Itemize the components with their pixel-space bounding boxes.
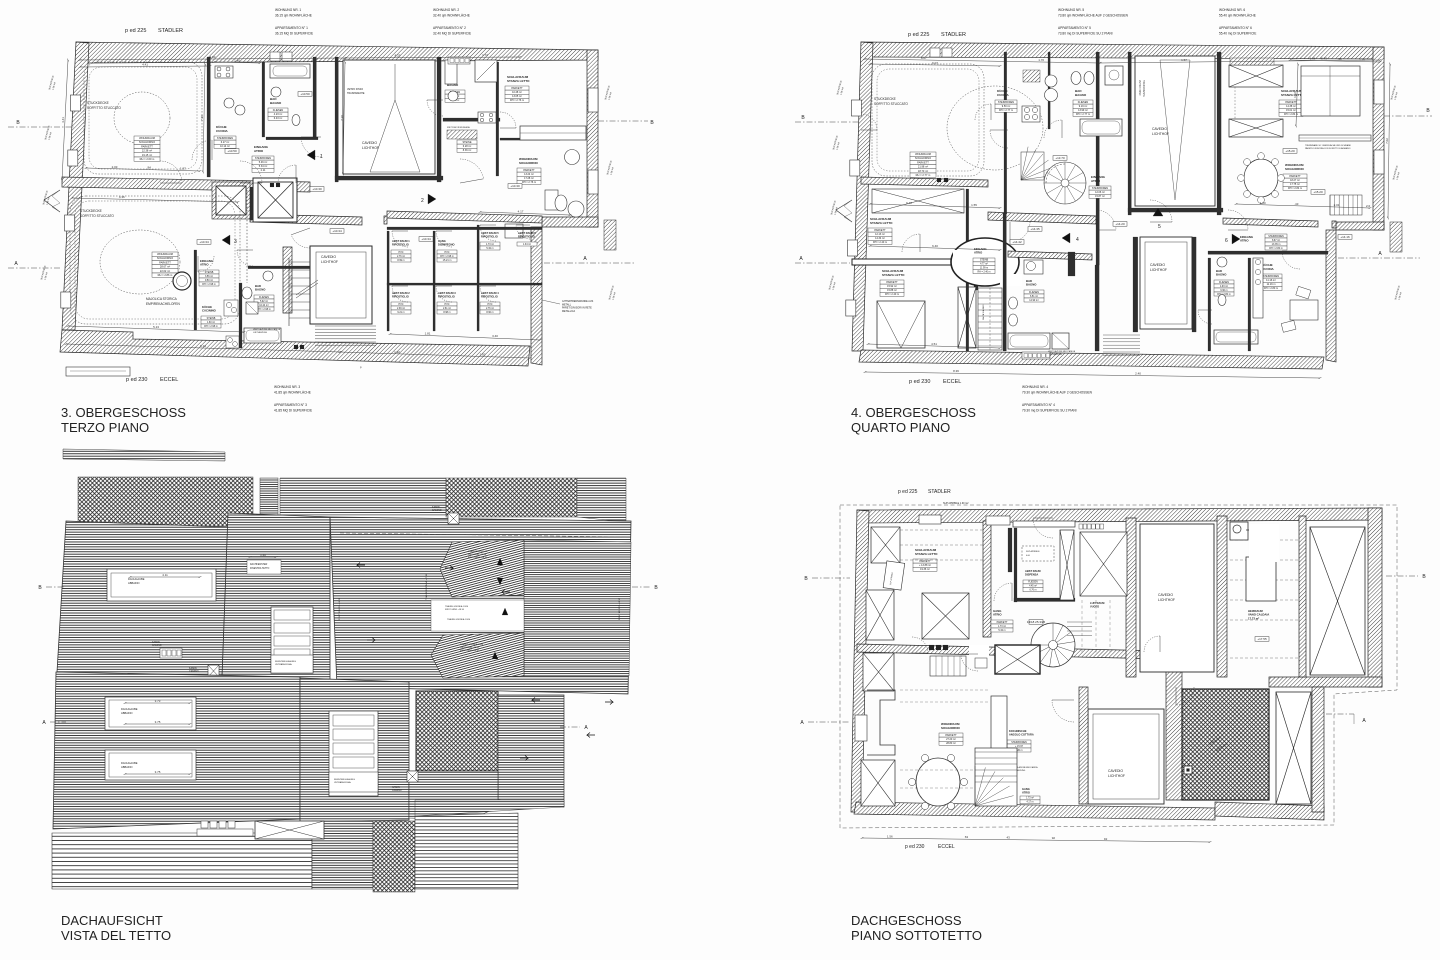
svg-text:CAMINO: CAMINO [152,644,162,647]
svg-text:ABST RAUM 6: ABST RAUM 6 [518,231,536,235]
svg-text:KOCHNISCHE: KOCHNISCHE [1009,729,1027,733]
svg-text:PARETE DIVISORIA CON SOFFITTO: PARETE DIVISORIA CON SOFFITTO E ARMADIO [1305,147,1351,150]
svg-text:RH = 2.84 m: RH = 2.84 m [1288,187,1302,190]
svg-text:BAGNO: BAGNO [255,288,266,292]
svg-text:ATRIO: ATRIO [993,613,1002,617]
svg-text:APPARTAMENTO N° 2: APPARTAMENTO N° 2 [433,26,466,30]
svg-text:8.98 m: 8.98 m [443,311,450,314]
svg-text:WOHNUNG NR. 6: WOHNUNG NR. 6 [1219,8,1245,12]
svg-text:TRAPEZBLECH 1 FB: TRAPEZBLECH 1 FB [468,550,488,553]
svg-text:4: 4 [1076,237,1079,243]
svg-text:STEINBODEN: STEINBODEN [1268,235,1284,238]
svg-text:SOGGIORNO: SOGGIORNO [941,726,961,730]
svg-text:BAGNO: BAGNO [1026,283,1037,287]
svg-text:19.36 m²: 19.36 m² [920,568,930,571]
svg-text:4.23 m²: 4.23 m² [274,113,283,116]
svg-text:9.21 m: 9.21 m [397,311,404,314]
svg-text:43: 43 [1007,836,1011,840]
svg-text:5.13: 5.13 [153,325,159,329]
svg-text:32.40 MQ DI SUPERFICIE: 32.40 MQ DI SUPERFICIE [433,32,471,36]
svg-text:5: 5 [1158,224,1161,230]
svg-text:VETRATA FISSA: VETRATA FISSA [334,781,351,784]
svg-text:WOHNUNG NR. 3: WOHNUNG NR. 3 [274,385,300,389]
svg-text:RH = 2.80 m: RH = 2.80 m [1264,287,1278,290]
svg-text:STUCKDECKE: STUCKDECKE [874,97,896,101]
svg-text:PARKETT: PARKETT [523,169,535,172]
svg-text:FIRST GRND +18.94: FIRST GRND +18.94 [445,609,465,611]
svg-text:RH = 2.76 m: RH = 2.76 m [510,99,524,102]
svg-text:2: 2 [421,198,424,204]
svg-text:ATRIO: ATRIO [200,263,209,267]
svg-text:CUCINA: CUCINA [1262,267,1274,271]
svg-text:STEINBODEN: STEINBODEN [1263,275,1279,278]
svg-text:ECCEL: ECCEL [160,377,178,383]
svg-text:CUCINA: CUCINA [216,129,228,133]
svg-text:TRAUFE GRONDA 1 B.M: TRAUFE GRONDA 1 B.M [445,605,468,608]
svg-text:1: 1 [320,154,323,160]
svg-text:+10.30: +10.30 [312,187,322,191]
svg-text:CAMINO: CAMINO [189,670,199,673]
svg-text:VETRATA FISSA: VETRATA FISSA [275,663,292,666]
svg-text:p ed 230: p ed 230 [909,379,930,385]
svg-text:+10.30: +10.30 [510,184,520,188]
svg-text:8.67 m²: 8.67 m² [1272,239,1280,242]
svg-text:WOHNUNG NR. 5: WOHNUNG NR. 5 [1058,8,1084,12]
svg-text:RIPOSTIGLIO: RIPOSTIGLIO [392,243,409,247]
svg-text:1.73 m²: 1.73 m² [998,625,1006,628]
svg-text:WOHNUNG NR. 4: WOHNUNG NR. 4 [1022,385,1048,389]
svg-text:2.76 m²: 2.76 m² [397,255,405,258]
svg-text:73.80 qm WOHNFLÄCHE AUF 2 GESC: 73.80 qm WOHNFLÄCHE AUF 2 GESCHOSSEN [1058,14,1129,18]
svg-text:p ed 230: p ed 230 [905,844,925,850]
svg-text:4.41: 4.41 [61,117,65,123]
svg-text:ABST RAUM 1: ABST RAUM 1 [392,239,410,243]
svg-text:RH = 2.86 m: RH = 2.86 m [158,273,173,277]
svg-text:STADLER: STADLER [928,489,951,495]
svg-text:FLIESEN: FLIESEN [1029,291,1039,294]
svg-text:PVC: PVC [445,303,450,306]
svg-text:13/18 25.3/26: 13/18 25.3/26 [1027,620,1046,624]
svg-text:ABST RAUM 3: ABST RAUM 3 [438,291,456,295]
svg-text:6.27 m²: 6.27 m² [221,141,230,144]
svg-text:3.75: 3.75 [155,720,161,724]
svg-text:RH = 2.60 m: RH = 2.60 m [140,157,155,161]
svg-text:5.34 m²: 5.34 m² [259,165,268,168]
svg-text:15.01 m²: 15.01 m² [1286,109,1296,112]
svg-text:PVC: PVC [488,303,493,306]
svg-text:5.46 m²: 5.46 m² [259,161,268,164]
svg-text:4.36: 4.36 [119,195,125,199]
svg-text:1.57: 1.57 [1181,58,1187,62]
svg-text:+10.50: +10.50 [300,92,310,96]
svg-text:FENSTERGLASUNG: FENSTERGLASUNG [334,778,355,781]
svg-text:LICHTHOF: LICHTHOF [321,260,338,264]
svg-text:ATRIO: ATRIO [254,149,264,153]
svg-text:p ed 225: p ed 225 [908,32,929,38]
svg-text:EINGANG: EINGANG [974,247,987,251]
svg-text:DISPENSA: DISPENSA [1025,573,1038,577]
svg-text:FLIESEN: FLIESEN [259,296,269,299]
svg-text:STEINBODEN: STEINBODEN [998,101,1014,104]
svg-text:28.67 m²: 28.67 m² [160,265,170,269]
svg-text:PARKETT: PARKETT [159,260,171,264]
svg-text:6.07: 6.07 [932,61,938,65]
svg-text:10.24 m²: 10.24 m² [259,304,269,307]
svg-text:STANZA LETTO: STANZA LETTO [870,221,893,225]
svg-text:13.35 m: 13.35 m [1272,243,1281,246]
svg-text:VISTA DEL TETTO: VISTA DEL TETTO [61,928,171,943]
svg-text:STEINE: STEINE [462,141,471,144]
svg-text:22.38 m²: 22.38 m² [142,149,152,153]
svg-text:FLIESEN: FLIESEN [273,109,284,112]
svg-text:MAJOLICA STORICA: MAJOLICA STORICA [146,297,178,301]
svg-text:1.81: 1.81 [425,332,431,336]
svg-text:11.99 m: 11.99 m [980,268,988,270]
svg-text:9.50 m²: 9.50 m² [205,279,213,282]
svg-text:79.30 qm WOHNFLÄCHE AUF 2 GESC: 79.30 qm WOHNFLÄCHE AUF 2 GESCHOSSEN [1022,391,1093,395]
svg-text:PVC: PVC [399,251,404,254]
svg-text:SOFFITTO STUCCATO: SOFFITTO STUCCATO [874,102,908,106]
svg-text:APPARTAMENTO N° 3: APPARTAMENTO N° 3 [274,403,307,407]
svg-text:17.28 m²: 17.28 m² [524,177,534,180]
svg-text:+10.34: +10.34 [332,229,342,233]
svg-text:PARKETT: PARKETT [1289,175,1301,178]
svg-text:PVC: PVC [445,251,450,254]
svg-text:5.34 m: 5.34 m [998,629,1005,632]
svg-text:LUFTHEIZUNG: LUFTHEIZUNG [253,332,267,334]
svg-text:PARKETT: PARKETT [886,281,898,284]
svg-text:DACHFENSTER: DACHFENSTER [250,563,268,566]
svg-text:CAMINO: CAMINO [392,789,402,792]
svg-text:APPARTAMENTO N° 4: APPARTAMENTO N° 4 [1022,403,1055,407]
svg-text:13.99 m²: 13.99 m² [1078,109,1088,112]
svg-text:TRENNWAND 90° OBERFLÄCHE UND S: TRENNWAND 90° OBERFLÄCHE UND SCHRANK [1305,144,1352,147]
svg-text:RIPOSTIGLIO: RIPOSTIGLIO [438,295,455,299]
svg-text:3.40: 3.40 [492,334,498,338]
svg-text:STADLER: STADLER [941,32,966,38]
svg-text:LICHTHOF: LICHTHOF [1158,598,1175,602]
svg-text:TRAUFE GRONDA +17.46: TRAUFE GRONDA +17.46 [425,573,428,600]
svg-text:CAVEDIO: CAVEDIO [1108,769,1123,773]
svg-text:VETRO FISSO: VETRO FISSO [347,88,363,91]
svg-text:RH = 2.98 m: RH = 2.98 m [204,325,218,328]
svg-text:FENSTERGLASUNG: FENSTERGLASUNG [275,660,296,663]
svg-text:1.36: 1.36 [1359,58,1365,62]
svg-text:73.80 mq DI SUPERFICIE SU 2 PI: 73.80 mq DI SUPERFICIE SU 2 PIANI [1058,32,1113,36]
svg-text:+10.34: +10.34 [199,240,209,244]
svg-text:p ed 230: p ed 230 [126,377,147,383]
svg-text:ABST RAUM 4: ABST RAUM 4 [481,291,499,295]
svg-text:+14.42: +14.42 [1012,240,1022,244]
svg-text:PARKETT: PARKETT [917,160,929,164]
svg-text:12.06 m²: 12.06 m² [1095,191,1105,194]
svg-text:STEINBODEN: STEINBODEN [1011,741,1027,744]
svg-text:1.72: 1.72 [482,53,488,57]
svg-text:QUARTO PIANO: QUARTO PIANO [851,420,950,435]
svg-text:3: 3 [234,239,237,245]
svg-text:2.01: 2.01 [1334,203,1340,207]
svg-text:WOHNRAUM: WOHNRAUM [915,152,931,156]
svg-text:3. OBERGESCHOSS: 3. OBERGESCHOSS [61,405,186,420]
svg-text:PARKETT: PARKETT [874,229,886,232]
svg-text:2.39 m²: 2.39 m² [397,307,405,310]
svg-text:SUP APRIBILE 1.90 m2: SUP APRIBILE 1.90 m2 [943,502,969,505]
svg-text:10.14 m²: 10.14 m² [220,145,230,148]
svg-text:SOGGIORNO: SOGGIORNO [139,140,155,144]
svg-text:TERZO PIANO: TERZO PIANO [61,420,149,435]
svg-text:6.07: 6.07 [921,56,927,60]
svg-text:STEINBODEN: STEINBODEN [217,137,233,140]
svg-text:RH = 2.98 m: RH = 2.98 m [202,283,216,286]
svg-text:32.40 qm WOHNFLÄCHE: 32.40 qm WOHNFLÄCHE [433,14,470,18]
svg-text:+14.16: +14.16 [1340,235,1350,239]
svg-text:DACHGESCHOSS: DACHGESCHOSS [851,913,962,928]
svg-text:ECCEL: ECCEL [943,379,961,385]
svg-text:SOGGIORNO: SOGGIORNO [1285,167,1305,171]
svg-text:FLIESEN: FLIESEN [1028,582,1038,584]
svg-text:ABBAINO: ABBAINO [121,765,133,769]
svg-text:RIPOSTIGLIO: RIPOSTIGLIO [481,295,498,299]
svg-text:11.16 m: 11.16 m [1267,283,1276,286]
svg-text:GANG: GANG [438,239,446,243]
svg-text:+17.55: +17.55 [1257,637,1267,641]
svg-text:5.13: 5.13 [200,344,206,348]
svg-text:APPARTAMENTO N° 5: APPARTAMENTO N° 5 [1058,26,1091,30]
svg-text:63: 63 [965,835,969,839]
svg-text:8.99 m: 8.99 m [397,259,404,262]
svg-text:3.75: 3.75 [155,770,161,774]
svg-text:SUP APRIBILE: SUP APRIBILE [1026,550,1040,553]
svg-text:CAVEDIO: CAVEDIO [362,141,377,145]
svg-text:3.73: 3.73 [155,699,161,703]
svg-text:TRAPEZ GRONDA 1 B.M: TRAPEZ GRONDA 1 B.M [460,643,483,646]
svg-text:LUFTRAUM: LUFTRAUM [1090,601,1104,605]
svg-text:4.11: 4.11 [162,573,168,577]
svg-text:FRETT/LATOR BRUSHERA: FRETT/LATOR BRUSHERA [447,126,470,129]
svg-text:8.36: 8.36 [953,369,959,373]
svg-text:+13.70: +13.70 [1055,156,1065,160]
svg-text:APPARTAMENTO N° 6: APPARTAMENTO N° 6 [1219,26,1252,30]
svg-text:CAVEDIO: CAVEDIO [1152,127,1167,131]
svg-text:PARKETT: PARKETT [1285,101,1297,104]
svg-text:15.21 m: 15.21 m [443,259,452,262]
svg-text:ABST RAUM: ABST RAUM [1025,569,1041,573]
svg-text:14.34 m²: 14.34 m² [875,237,885,240]
svg-text:6.43 m²: 6.43 m² [274,117,283,120]
svg-text:ABBAINO: ABBAINO [121,711,133,715]
svg-text:2.0: 2.0 [1366,204,1371,208]
svg-text:STANZA LETTO: STANZA LETTO [915,552,938,556]
svg-text:3.56 m²: 3.56 m² [205,275,213,278]
svg-text:5.92 m²: 5.92 m² [260,300,268,303]
svg-text:41.85 MQ DI SUPERFICIE: 41.85 MQ DI SUPERFICIE [274,409,312,413]
svg-text:RH = 2.77 m: RH = 2.77 m [916,173,931,177]
svg-text:18.27 m²: 18.27 m² [1290,179,1300,182]
svg-text:5.32 m: 5.32 m [486,247,493,250]
svg-text:ABBAINO: ABBAINO [128,581,140,585]
svg-text:+14.35: +14.35 [1030,227,1040,231]
svg-text:4.93: 4.93 [210,55,216,59]
svg-text:BAGNO: BAGNO [270,101,282,105]
svg-text:2.76 m²: 2.76 m² [486,307,494,310]
svg-text:4.51: 4.51 [931,342,937,346]
svg-text:LICHTHOF: LICHTHOF [362,146,379,150]
svg-text:ANGOLO COTTURA: ANGOLO COTTURA [1009,733,1034,737]
svg-text:15.87 m²: 15.87 m² [1095,195,1105,198]
svg-text:SALITA 18 ALZATE: SALITA 18 ALZATE [982,304,985,320]
svg-text:14.38 m²: 14.38 m² [1286,105,1296,108]
svg-text:WOHNRAUM: WOHNRAUM [139,136,155,140]
svg-text:79.30 mq DI SUPERFICIE SU 2 PI: 79.30 mq DI SUPERFICIE SU 2 PIANI [1022,409,1077,413]
svg-text:4.41: 4.41 [142,63,148,67]
svg-text:1.92: 1.92 [394,350,400,354]
svg-text:ABST RAUM 2: ABST RAUM 2 [392,291,410,295]
svg-text:6.40: 6.40 [932,244,938,248]
svg-text:6.76 m: 6.76 m [1029,590,1036,592]
svg-text:APPARTAMENTO N° 1: APPARTAMENTO N° 1 [275,26,308,30]
svg-text:BAGNO: BAGNO [1216,273,1227,277]
svg-text:FLIESEN: FLIESEN [1219,281,1229,284]
svg-text:18.73 m²: 18.73 m² [918,169,928,173]
svg-text:19.15 m²: 19.15 m² [142,153,152,157]
svg-text:FIRST GRND +18.94: FIRST GRND +18.94 [468,557,488,559]
svg-text:6.40: 6.40 [906,201,912,205]
svg-text:17.75 m²: 17.75 m² [1290,183,1300,186]
svg-text:2.40: 2.40 [1135,372,1141,376]
svg-text:ATRIO: ATRIO [1022,791,1030,795]
svg-text:1.34 m²: 1.34 m² [523,243,531,246]
svg-text:RH = 2.77 m: RH = 2.77 m [999,109,1013,112]
svg-text:27.20 m²: 27.20 m² [946,738,956,741]
svg-text:1.56: 1.56 [887,834,893,838]
svg-text:PARKETT: PARKETT [511,87,523,90]
svg-text:CUCININO: CUCININO [202,309,217,313]
svg-text:2.11: 2.11 [261,169,266,172]
svg-text:4.45 m²: 4.45 m² [1029,585,1037,588]
svg-text:6.51 m²: 6.51 m² [1030,295,1038,298]
svg-text:SOFFITTO STUCCATO: SOFFITTO STUCCATO [80,214,114,218]
svg-text:1.55: 1.55 [971,203,977,207]
svg-text:13.24 m²: 13.24 m² [524,173,534,176]
svg-text:15.92 m²: 15.92 m² [887,285,897,288]
svg-text:1.40: 1.40 [234,59,240,63]
svg-text:13.05 m²: 13.05 m² [512,95,522,98]
svg-text:92: 92 [1052,836,1056,840]
svg-text:4.17: 4.17 [518,209,524,213]
svg-text:STEINB: STEINB [980,260,989,262]
svg-text:1.97: 1.97 [180,167,186,171]
svg-text:4. OBERGESCHOSS: 4. OBERGESCHOSS [851,405,976,420]
svg-text:7.20: 7.20 [340,115,344,121]
svg-text:55.40 mq DI SUPERFICIE: 55.40 mq DI SUPERFICIE [1219,32,1256,36]
svg-text:4.17 m: 4.17 m [1026,802,1033,804]
svg-text:TRASPARENTE: TRASPARENTE [347,92,365,95]
svg-text:PARKETT: PARKETT [997,621,1008,624]
svg-text:FIRST GRND +18.87: FIRST GRND +18.87 [460,650,480,652]
svg-text:STUCKDECKE: STUCKDECKE [87,101,109,105]
svg-text:ATRIO: ATRIO [974,251,982,255]
svg-text:55.40 qm WOHNFLÄCHE: 55.40 qm WOHNFLÄCHE [1219,14,1256,18]
svg-text:RIPOSTIGLIO: RIPOSTIGLIO [392,295,409,299]
svg-text:9.50 m²: 9.50 m² [1002,105,1011,108]
svg-text:WOHNUNG NR. 2: WOHNUNG NR. 2 [433,8,459,12]
svg-text:CAMINO: CAMINO [432,509,442,512]
svg-text:1.60 m²: 1.60 m² [207,321,215,324]
svg-text:ECCEL: ECCEL [938,844,955,850]
svg-text:7.02: 7.02 [1385,138,1389,144]
svg-text:RH = 2.80 m: RH = 2.80 m [1269,247,1283,250]
svg-text:92: 92 [1104,837,1108,841]
svg-text:10.48 m²: 10.48 m² [512,91,522,94]
svg-text:PARKETT: PARKETT [945,734,957,737]
svg-text:+10.34: +10.34 [421,237,431,241]
svg-text:LICHTHOF: LICHTHOF [1108,774,1125,778]
svg-text:STEINB: STEINB [205,271,214,274]
svg-text:CUCINA: CUCINA [997,93,1009,97]
svg-text:PIANO SOTTOTETTO: PIANO SOTTOTETTO [851,928,982,943]
svg-text:9.19 m²: 9.19 m² [1079,105,1088,108]
svg-text:RH = 2.84 m: RH = 2.84 m [1284,113,1298,116]
svg-text:22.02 m²: 22.02 m² [160,269,170,273]
svg-text:WOHNUNG NR. 1: WOHNUNG NR. 1 [275,8,301,12]
svg-text:RH = 2.76 m: RH = 2.76 m [522,181,536,184]
svg-text:RH = 2.77 m: RH = 2.77 m [1076,113,1090,116]
svg-text:ATRIO: ATRIO [1240,239,1249,243]
svg-text:1.40: 1.40 [260,553,266,557]
svg-text:1.82: 1.82 [480,353,486,357]
svg-text:STADLER: STADLER [158,28,183,34]
svg-text:SOFFITTO STUCCATO: SOFFITTO STUCCATO [87,106,121,110]
svg-text:TRASPARENTE: TRASPARENTE [1142,80,1145,97]
svg-text:7.30: 7.30 [200,115,204,121]
svg-text:ABST RAUM 5: ABST RAUM 5 [481,231,499,235]
svg-text:STANZA LETTO: STANZA LETTO [507,79,530,83]
svg-text:DACHAUFSICHT: DACHAUFSICHT [61,913,163,928]
svg-text:FINO GRND +17.46: FINO GRND +17.46 [468,554,487,556]
svg-text:+10.50: +10.50 [227,149,237,153]
svg-text:4.77 m²: 4.77 m² [980,263,988,266]
svg-text:PARKETT: PARKETT [919,560,931,563]
svg-text:.43: .43 [1294,202,1299,206]
svg-text:2.03: 2.03 [112,165,118,169]
svg-text:+15.20: +15.20 [1285,149,1295,153]
svg-text:FLIESEN: FLIESEN [1078,101,1089,104]
svg-text:12.90 m²: 12.90 m² [1029,299,1039,302]
svg-text:15.88 m²: 15.88 m² [887,289,897,292]
svg-text:CAVEDIO: CAVEDIO [1150,263,1165,267]
svg-text:+15.20: +15.20 [1313,190,1323,194]
svg-text:PVC: PVC [399,303,404,306]
svg-text:DACHGAUBE: DACHGAUBE [128,577,145,581]
svg-text:DACHGAUBE: DACHGAUBE [121,707,138,711]
svg-text:RH = 2.98 m: RH = 2.98 m [257,308,271,311]
svg-text:1.00: 1.00 [1260,201,1266,205]
svg-text:METALLICA: METALLICA [562,310,576,313]
svg-text:CAVEDIO: CAVEDIO [1158,593,1173,597]
svg-text:STANZA LETTO: STANZA LETTO [882,273,905,277]
svg-text:VENTILAZIONE MECCANICA: VENTILAZIONE MECCANICA [1048,350,1076,353]
svg-text:PARKETT: PARKETT [141,144,153,148]
svg-text:TRAUFE GRONDA 1 B.M: TRAUFE GRONDA 1 B.M [447,618,470,621]
svg-text:4.93 m²: 4.93 m² [1220,285,1228,288]
svg-text:1.36: 1.36 [1310,57,1316,61]
svg-text:RH = 2.98 m: RH = 2.98 m [440,255,454,258]
svg-text:41.85 qm WOHNFLÄCHE: 41.85 qm WOHNFLÄCHE [274,391,311,395]
svg-text:BAGNO: BAGNO [1075,93,1087,97]
svg-text:p ed 225: p ed 225 [898,489,918,495]
svg-text:2.61 m²: 2.61 m² [443,307,451,310]
svg-text:STEINBODEN: STEINBODEN [255,157,271,160]
